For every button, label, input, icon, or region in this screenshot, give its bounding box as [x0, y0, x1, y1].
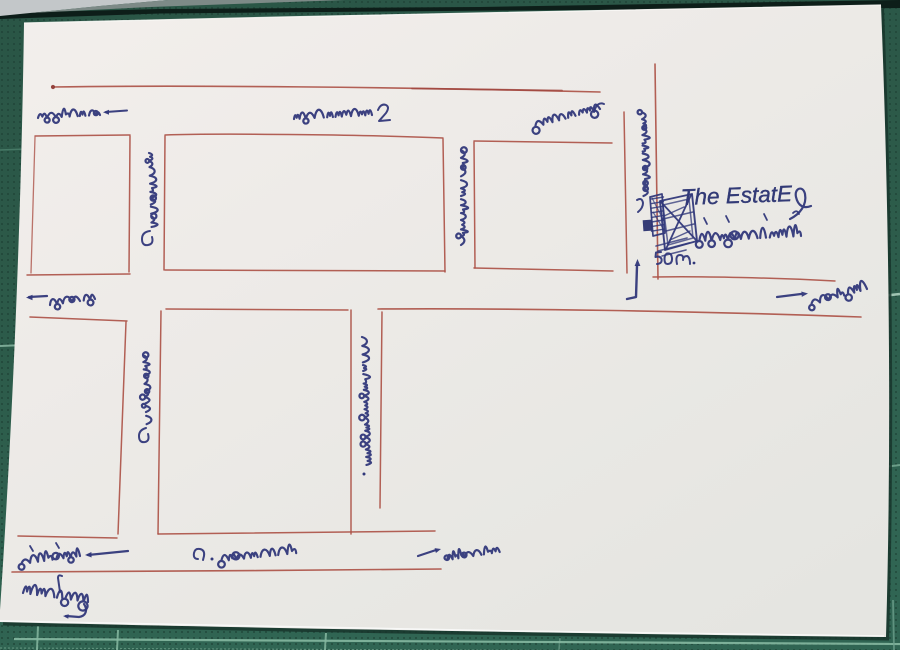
svg-text:The EstatE: The EstatE: [680, 181, 793, 210]
